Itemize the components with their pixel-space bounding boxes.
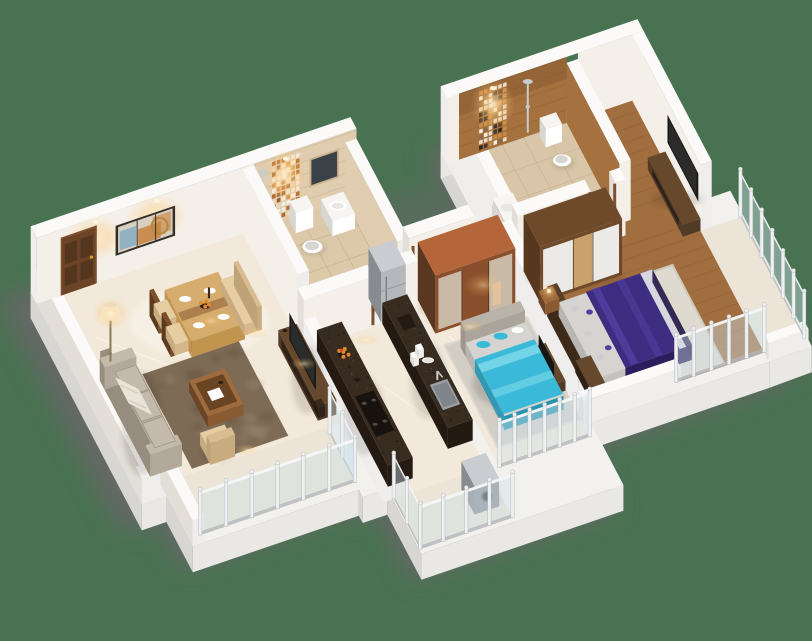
railing-post: [803, 292, 806, 339]
railing-post: [763, 306, 767, 353]
railing-post: [465, 489, 468, 534]
pillow: [476, 341, 490, 348]
railing-post: [674, 336, 677, 383]
railing-post: [302, 455, 305, 500]
railing-post: [353, 437, 356, 482]
entrance-door: [61, 225, 97, 295]
railing-post: [792, 272, 795, 319]
door-knob: [90, 256, 93, 259]
burner: [371, 399, 376, 402]
railing-post: [692, 330, 695, 377]
railing-post: [224, 481, 227, 526]
railing-post: [328, 446, 331, 491]
tap: [328, 188, 331, 191]
railing-post: [405, 479, 408, 524]
pillow: [586, 309, 593, 314]
railing-post: [543, 405, 546, 452]
pillow: [494, 333, 508, 340]
railing-post: [199, 490, 202, 535]
floorplan-render: [0, 0, 812, 641]
railing-post: [588, 390, 591, 437]
railing-post: [573, 395, 576, 442]
pillow: [512, 327, 524, 333]
burner: [362, 402, 367, 405]
burner: [373, 423, 378, 426]
pillow: [605, 345, 612, 350]
pillow: [596, 354, 604, 360]
railing-post: [250, 473, 253, 518]
railing-post: [419, 504, 422, 549]
railing-post: [442, 496, 445, 541]
pillow: [584, 331, 592, 337]
railing-post: [498, 421, 501, 468]
railing-post: [328, 389, 331, 434]
railing-post: [528, 410, 531, 457]
railing-post: [739, 170, 742, 217]
plate: [179, 296, 191, 302]
railing-post: [760, 211, 763, 258]
railing-post: [781, 251, 784, 298]
railing-post: [771, 231, 774, 278]
railing-post: [727, 318, 730, 365]
railing-post: [558, 400, 561, 447]
railing-post: [745, 312, 748, 359]
railing-post: [710, 324, 713, 371]
burner: [382, 420, 387, 423]
railing-post: [488, 481, 491, 526]
railing-post: [276, 464, 279, 509]
railing-post: [511, 473, 514, 518]
railing-post: [392, 454, 395, 499]
railing-post: [513, 416, 516, 463]
railing-post: [749, 190, 752, 237]
floorplan-image: [0, 0, 812, 641]
pillow: [571, 305, 579, 311]
